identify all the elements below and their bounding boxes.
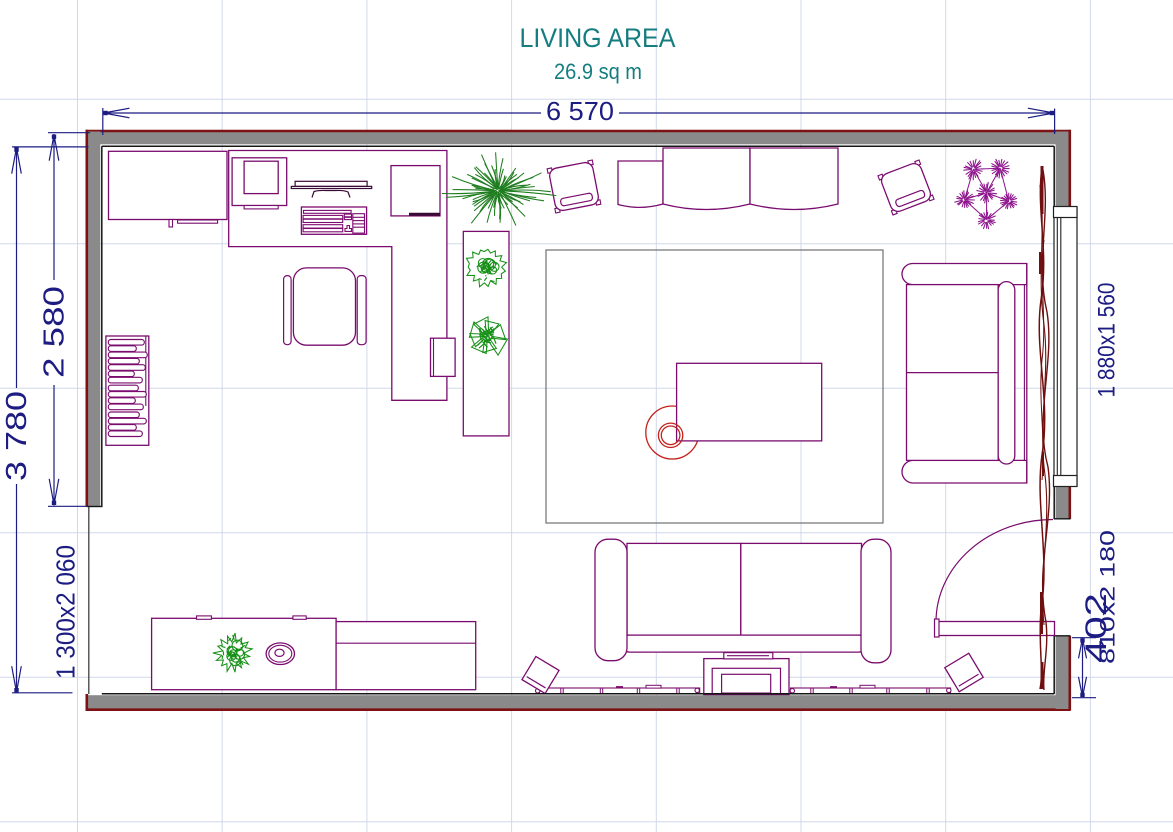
svg-text:402: 402: [1080, 593, 1113, 663]
svg-text:LIVING AREA: LIVING AREA: [520, 23, 676, 53]
svg-text:26.9 sq m: 26.9 sq m: [554, 59, 642, 84]
svg-text:6 570: 6 570: [546, 96, 614, 126]
svg-text:1 880x1 560: 1 880x1 560: [1094, 283, 1121, 398]
svg-text:2 580: 2 580: [39, 286, 71, 378]
svg-text:3 780: 3 780: [1, 391, 33, 481]
svg-text:1 300x2 060: 1 300x2 060: [51, 545, 81, 679]
